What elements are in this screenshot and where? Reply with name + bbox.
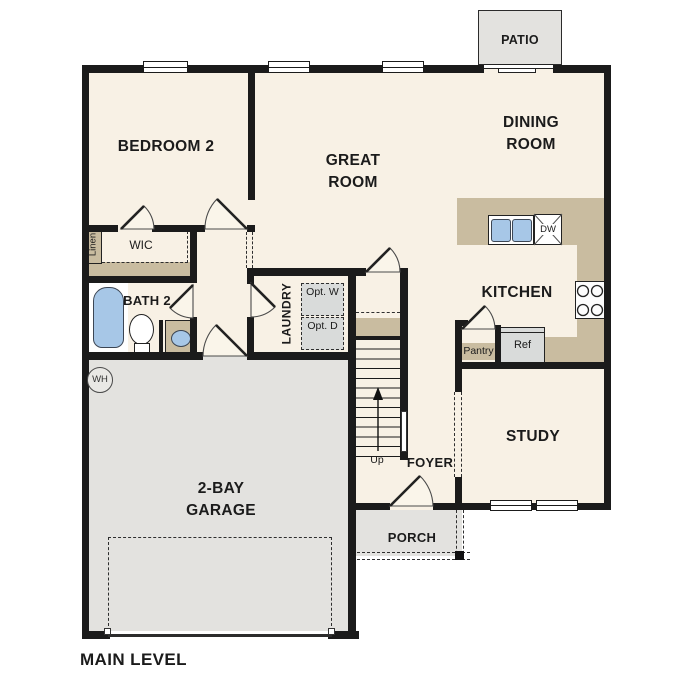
window: [490, 500, 532, 511]
room-label-garage: 2-BAY GARAGE: [161, 478, 281, 522]
vanity-sink: [171, 330, 191, 347]
kitchen-bottom-counter: [545, 337, 604, 363]
room-label-study: STUDY: [473, 426, 593, 448]
sink-basin-right: [512, 219, 532, 242]
window: [143, 61, 188, 73]
porch-corner-post: [455, 551, 464, 560]
refrigerator-top-line: [500, 332, 545, 333]
stair-landing: [356, 318, 400, 336]
room-label-linen: Linen: [87, 220, 100, 270]
wall-segment: [190, 231, 197, 283]
stair-dashed-line: [356, 312, 400, 313]
wall-segment: [455, 362, 611, 369]
room-label-laundry: LAUNDRY: [280, 274, 295, 354]
patio-slider-panel: [498, 68, 536, 73]
wall-segment: [247, 268, 352, 276]
page-title: MAIN LEVEL: [80, 649, 280, 671]
wall-segment: [553, 65, 611, 73]
stair-rail: [401, 411, 407, 452]
sink-basin-left: [491, 219, 511, 242]
opt-washer-label-1: Opt.: [306, 286, 326, 298]
room-label-dining-room: DINING ROOM: [481, 112, 581, 156]
room-label-kitchen: KITCHEN: [457, 282, 577, 304]
stair-treads: [356, 340, 400, 457]
porch-edge-dash-1: [352, 552, 470, 553]
room-label-wic: WIC: [111, 239, 171, 252]
refrigerator-label: Ref: [500, 339, 545, 352]
wall-segment: [455, 320, 468, 326]
porch-edge-dash-2: [352, 559, 470, 560]
garage-door-corner-left: [104, 628, 111, 635]
optional-washer: Opt. W: [301, 283, 344, 316]
wall-segment: [159, 320, 163, 353]
wall-segment: [455, 369, 462, 392]
wall-segment: [247, 276, 254, 284]
pantry-label: Pantry: [461, 345, 496, 358]
window: [268, 61, 310, 73]
wall-segment: [247, 317, 254, 352]
room-label-bedroom2: BEDROOM 2: [106, 136, 226, 158]
wall-segment: [248, 65, 255, 200]
water-heater: WH: [87, 367, 113, 393]
garage-door-corner-right: [328, 628, 335, 635]
wall-segment: [348, 503, 390, 510]
room-label-foyer: FOYER: [390, 455, 470, 470]
floor-plan: Opt. W Opt. D: [0, 0, 687, 687]
room-label-patio: PATIO: [470, 29, 570, 51]
wall-segment: [152, 225, 205, 232]
room-label-bath2: BATH 2: [107, 293, 187, 308]
window: [536, 500, 578, 511]
stairs-up-label: Up: [357, 454, 397, 467]
opt-washer-label-2: W: [329, 286, 339, 298]
wall-segment: [455, 503, 611, 510]
wall-segment: [190, 317, 197, 360]
wall-segment: [247, 225, 255, 232]
wall-segment: [348, 268, 366, 276]
garage-door-sill: [108, 634, 332, 637]
water-heater-label: WH: [92, 374, 108, 385]
closet-nook-floor: [89, 262, 190, 276]
wall-segment: [455, 477, 462, 503]
wall-segment: [82, 276, 194, 283]
toilet: [129, 314, 154, 345]
wall-segment: [604, 65, 611, 510]
hall-cased-opening: [246, 232, 253, 268]
wall-segment: [82, 352, 203, 360]
room-label-great-room: GREAT ROOM: [303, 150, 403, 194]
wall-segment: [247, 352, 348, 360]
optional-dryer: Opt. D: [301, 317, 344, 350]
garage-door-swing-area: [108, 537, 332, 631]
wall-segment: [348, 268, 356, 639]
dishwasher-label: DW: [534, 223, 562, 236]
stove: [575, 281, 605, 319]
opt-dryer-label-1: Opt.: [307, 320, 327, 332]
opt-dryer-label-2: D: [330, 320, 338, 332]
room-label-porch: PORCH: [362, 530, 462, 545]
window: [382, 61, 424, 73]
